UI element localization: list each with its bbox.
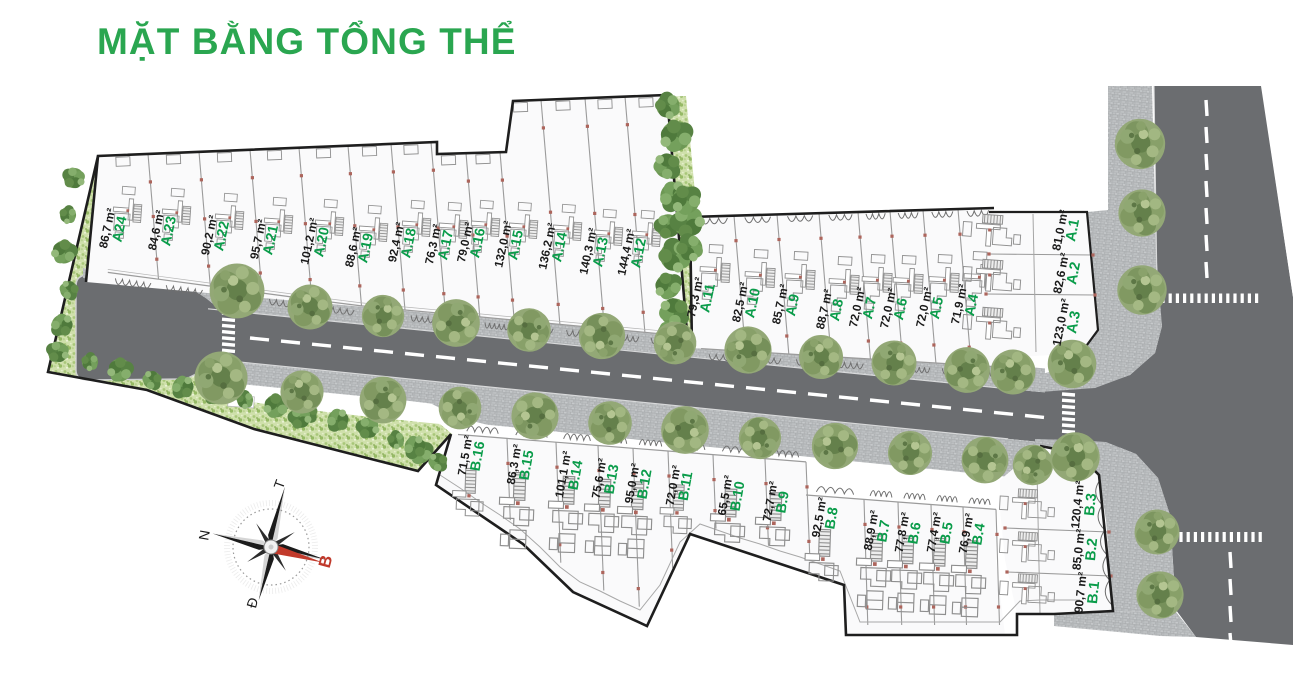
svg-text:MẶT BẰNG TỔNG THỂ: MẶT BẰNG TỔNG THỂ	[97, 19, 517, 62]
